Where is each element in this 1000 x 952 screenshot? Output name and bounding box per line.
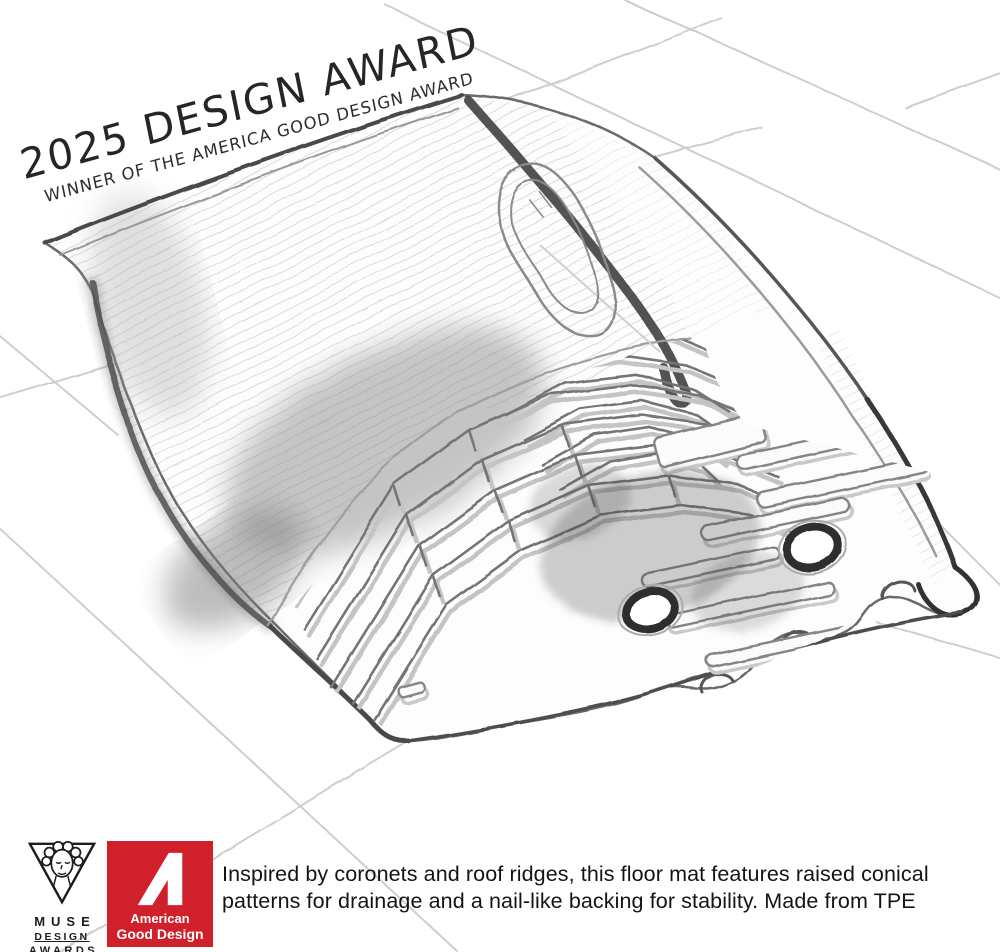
muse-face-icon [22,836,102,908]
muse-logo-awards: AWARDS [20,945,104,952]
badge-line2: Good Design [107,926,213,943]
product-description-line1: Inspired by coronets and roof ridges, th… [222,861,929,888]
product-description-line2: patterns for drainage and a nail-like ba… [222,888,929,915]
product-description: Inspired by coronets and roof ridges, th… [222,861,929,915]
muse-logo-name: MUSE [20,914,104,929]
product-image: 2025 DESIGN AWARD WINNER OF THE AMERICA … [0,0,1000,952]
good-design-a-icon [107,847,213,909]
american-good-design-badge: American Good Design [107,841,213,947]
muse-design-awards-logo: MUSE DESIGN AWARDS [20,836,104,952]
muse-logo-design: DESIGN [20,931,104,943]
